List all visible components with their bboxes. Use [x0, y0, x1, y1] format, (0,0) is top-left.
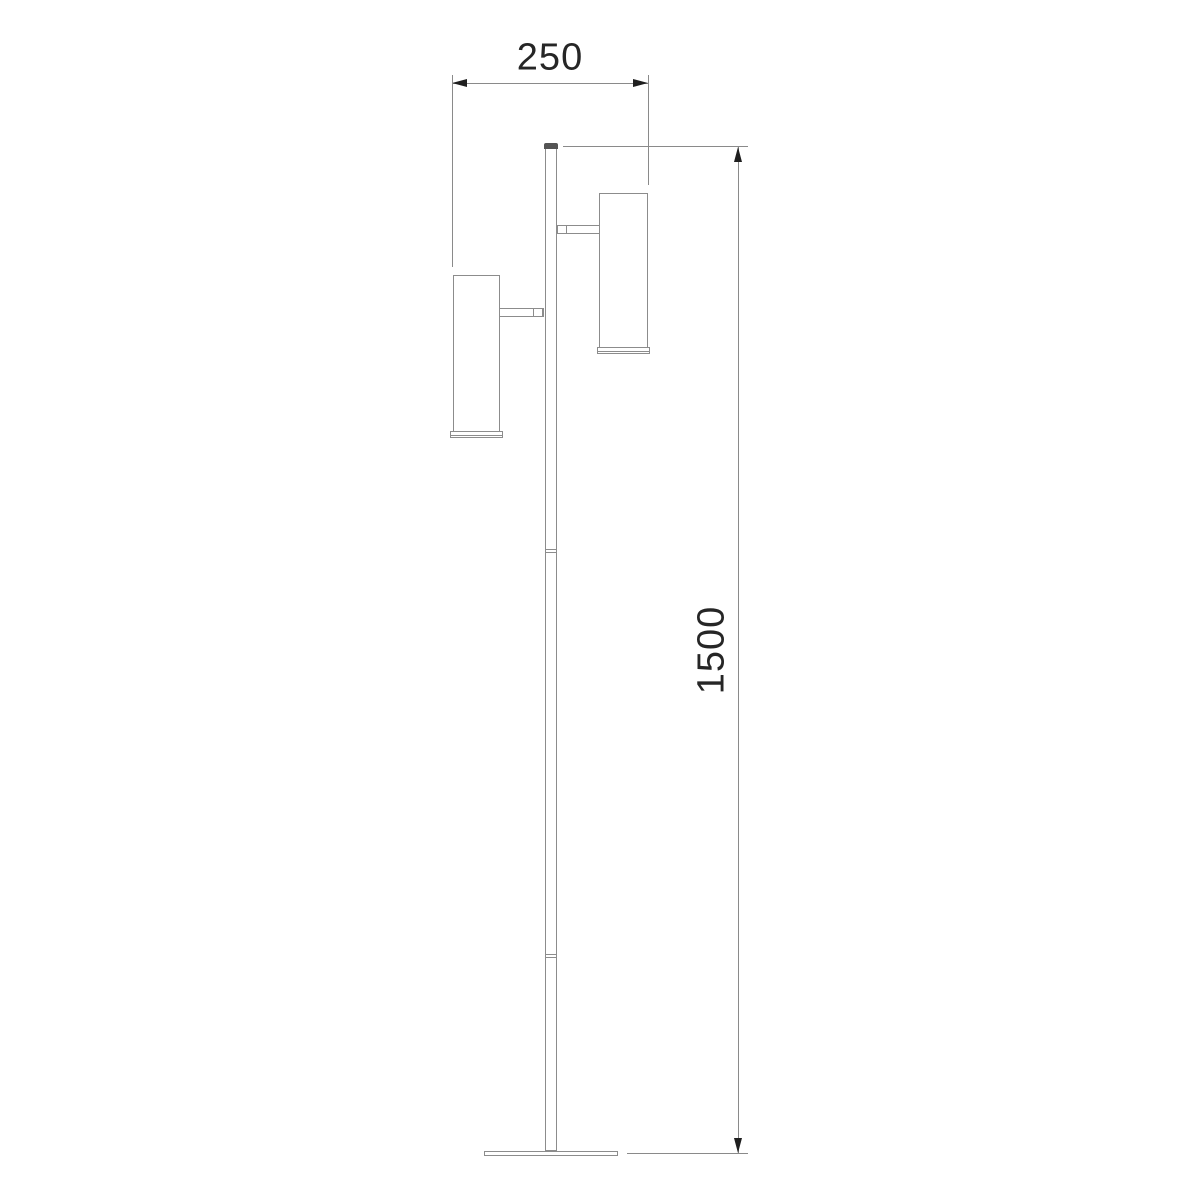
width-dimension-line [452, 83, 648, 84]
right-lamp-head [599, 193, 648, 348]
drawing-canvas: 250 1500 [0, 0, 1200, 1200]
width-dimension-label: 250 [517, 37, 583, 80]
base-plate [484, 1151, 618, 1156]
extension-line-right [648, 75, 649, 185]
left-head-arm-knuckle [533, 308, 543, 317]
left-lamp-head [453, 275, 500, 432]
pole-top-cap [544, 143, 558, 149]
left-lamp-head-rim-line [451, 435, 502, 436]
arrowhead-down-icon [734, 1138, 742, 1153]
extension-line-top [563, 146, 748, 147]
right-head-arm-knuckle [557, 225, 567, 234]
right-lamp-head-rim-line [598, 351, 649, 352]
height-dimension-line [738, 147, 739, 1153]
arrowhead-left-icon [452, 79, 467, 87]
lamp-pole [545, 148, 557, 1151]
arrowhead-right-icon [633, 79, 648, 87]
extension-line-bottom [627, 1153, 748, 1154]
arrowhead-up-icon [734, 147, 742, 162]
pole-joint-upper [546, 549, 556, 553]
height-dimension-label: 1500 [691, 606, 734, 695]
extension-line-left [452, 75, 453, 267]
pole-joint-lower [546, 954, 556, 958]
